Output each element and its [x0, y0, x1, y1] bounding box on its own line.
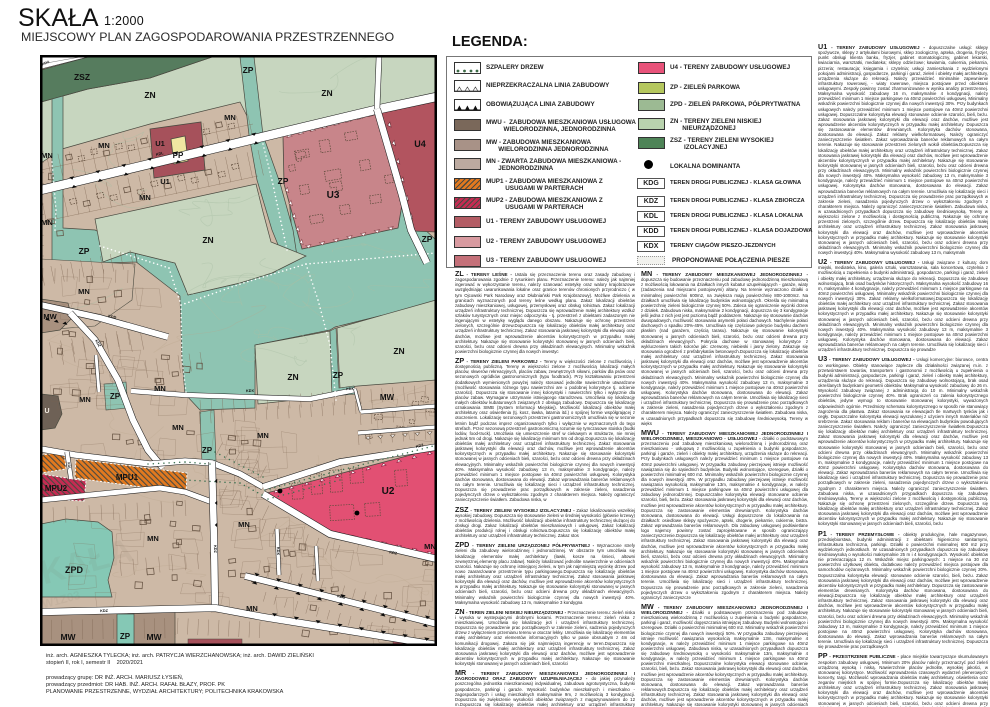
svg-text:MN: MN — [147, 534, 159, 543]
svg-text:ZP: ZP — [243, 65, 254, 75]
svg-text:ZP: ZP — [79, 246, 90, 256]
svg-text:MW: MW — [60, 632, 76, 642]
svg-text:ZP: ZP — [202, 446, 213, 455]
svg-text:MN: MN — [79, 395, 91, 404]
svg-text:MPU2: MPU2 — [45, 484, 68, 493]
svg-text:KDZ: KDZ — [100, 609, 109, 613]
svg-text:ZN: ZN — [202, 235, 213, 245]
svg-text:MN: MN — [246, 604, 258, 613]
svg-text:KDX: KDX — [276, 547, 280, 556]
svg-text:MN: MN — [154, 384, 166, 393]
svg-text:ZN: ZN — [393, 346, 404, 356]
svg-text:MN: MN — [424, 542, 436, 551]
svg-text:U4: U4 — [414, 139, 426, 149]
svg-text:U3: U3 — [327, 190, 340, 201]
svg-text:MPU1: MPU1 — [116, 473, 139, 482]
svg-text:KDZ: KDZ — [213, 545, 217, 554]
svg-text:MN: MN — [238, 520, 250, 529]
svg-text:MN: MN — [224, 113, 236, 122]
svg-text:U1: U1 — [155, 139, 165, 148]
svg-text:MN: MN — [172, 423, 184, 432]
svg-text:MN: MN — [41, 218, 53, 227]
svg-text:ZP: ZP — [120, 632, 131, 641]
svg-text:MW: MW — [380, 393, 395, 402]
svg-text:ZP: ZP — [110, 392, 121, 401]
svg-text:PP: PP — [173, 151, 184, 160]
svg-text:ZP: ZP — [422, 234, 433, 244]
svg-text:MN: MN — [78, 287, 90, 296]
svg-text:ZN: ZN — [144, 90, 155, 100]
svg-text:KDX: KDX — [246, 389, 255, 393]
svg-text:KDX: KDX — [346, 387, 354, 391]
svg-text:ZSZ: ZSZ — [74, 72, 90, 82]
svg-text:U: U — [44, 408, 49, 415]
svg-text:ZN: ZN — [287, 372, 298, 382]
svg-text:MN: MN — [139, 193, 151, 202]
svg-text:U1: U1 — [160, 177, 170, 186]
svg-text:MW: MW — [146, 632, 162, 642]
svg-text:ZP: ZP — [278, 176, 289, 186]
svg-text:MN: MN — [98, 141, 110, 150]
svg-text:ZN: ZN — [321, 88, 332, 98]
svg-text:MN: MN — [257, 431, 269, 440]
svg-text:U2: U2 — [382, 486, 395, 497]
svg-text:MN: MN — [41, 151, 53, 160]
svg-text:ZP: ZP — [333, 371, 344, 380]
